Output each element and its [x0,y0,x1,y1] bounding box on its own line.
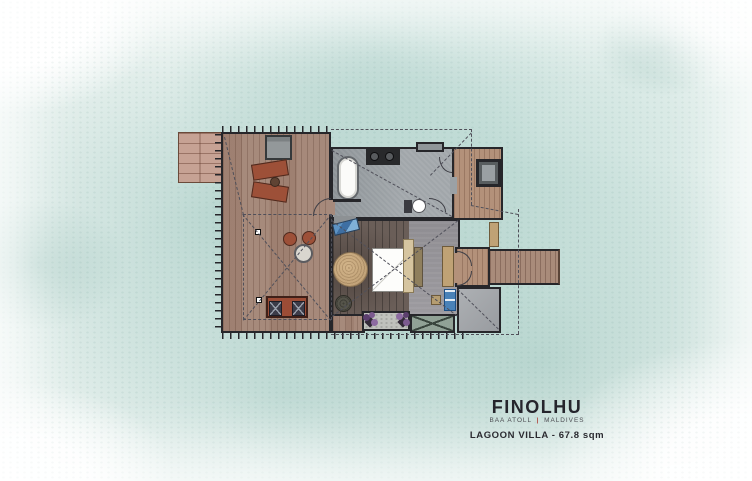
plant-foliage [371,319,378,326]
outdoor-bath-basin [476,159,501,187]
outdoor-daybed [265,135,292,160]
brand-subtitle-location: BAA ATOLL [490,417,532,424]
brand-subtitle: BAA ATOLL | MALDIVES [461,417,613,424]
bed-headboard [403,239,414,293]
brand-block: FINOLHU BAA ATOLL | MALDIVES LAGOON VILL… [461,399,613,441]
potted-plant [363,312,379,329]
outdoor-cabinet [489,222,499,247]
plant-foliage [403,312,409,318]
roof-dashed-top [331,129,472,130]
floor-plan [0,0,752,481]
plant-foliage [369,312,375,318]
roof-dashed-bottom [331,334,519,335]
wardrobe [442,246,454,287]
brand-subtitle-separator: | [535,417,542,424]
deck-edge-ticks-top [222,126,332,132]
lounger-side-table [270,177,280,187]
service-hatch [410,314,455,333]
deck-strip-south [331,314,365,333]
brand-subtitle-country: MALDIVES [544,417,584,424]
plant-foliage [396,313,403,320]
potted-plant [395,312,411,329]
roof-dashed-right-upper [471,129,472,205]
vanity-sink [370,152,379,161]
deck-edge-ticks-left [215,134,221,332]
double-vanity [366,149,400,165]
round-jute-rug [333,252,368,287]
shower-niche [416,142,444,152]
brand-name: FINOLHU [461,399,613,415]
lagoon-villa-floorplan: FINOLHU BAA ATOLL | MALDIVES LAGOON VILL… [0,0,752,481]
jetty-walkway [490,249,560,285]
tub-niche-wall [333,199,361,202]
outdoor-bath-opening [450,177,457,194]
vanity-sink [385,152,394,161]
plant-foliage [403,319,410,326]
toilet-cistern [404,200,412,213]
plan-title: LAGOON VILLA - 67.8 sqm [461,430,613,441]
roof-dashed-right-lower [518,209,519,334]
